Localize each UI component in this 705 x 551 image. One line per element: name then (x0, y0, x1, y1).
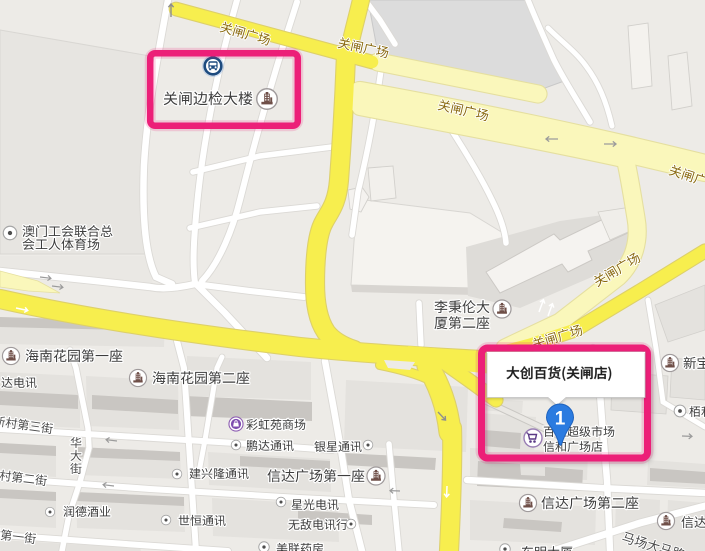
svg-text:1: 1 (555, 409, 566, 430)
